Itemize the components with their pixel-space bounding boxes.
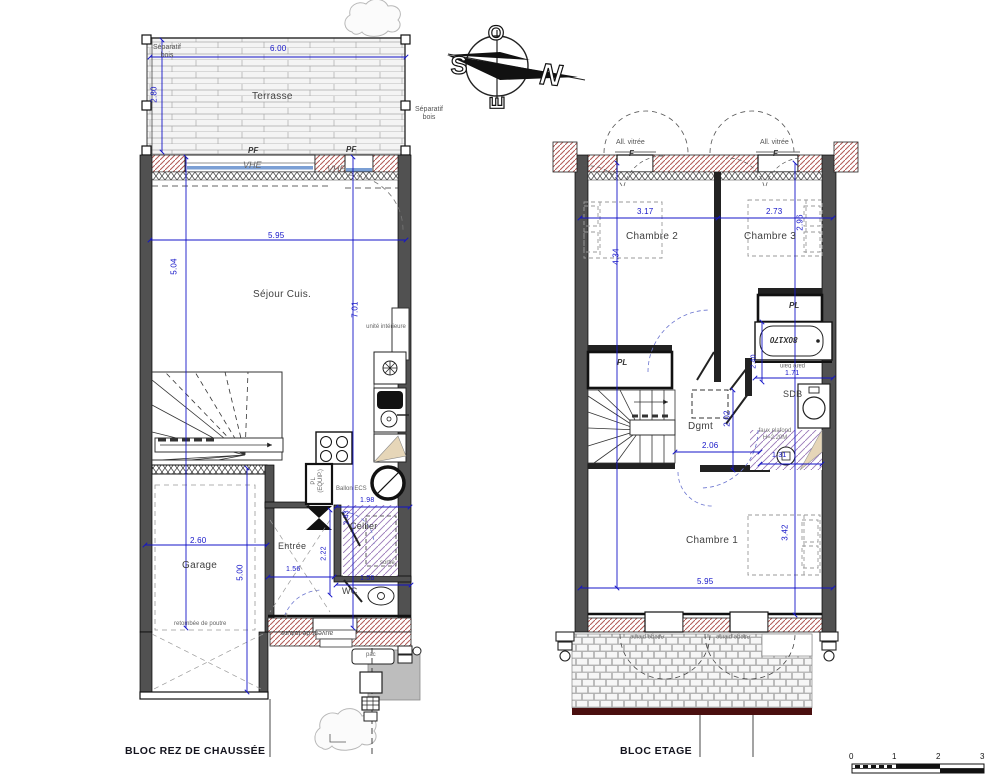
window-f1	[617, 155, 653, 172]
dim-3-17: 3.17	[637, 207, 653, 216]
ground-floor-title: BLOC REZ DE CHAUSSÉE	[125, 745, 265, 757]
pl-equip-label: PL (EQUIP.)	[311, 465, 325, 497]
gutter-band	[572, 708, 812, 715]
compass-south: S	[451, 52, 468, 80]
window-pf2-label: PF	[346, 145, 356, 154]
ballon-ecs-label: Ballon ECS	[336, 486, 367, 492]
counter-corner	[374, 434, 406, 462]
window-swing	[604, 111, 794, 153]
garage-label: Garage	[182, 560, 217, 571]
dim-5-04: 5.04	[170, 258, 179, 274]
dim-2-22: 2.22	[321, 546, 328, 560]
partition	[714, 172, 721, 382]
faux-plafond-label: faux plafond H=2.20M	[746, 428, 804, 442]
scale-bar	[852, 764, 984, 773]
entree-label: Entrée	[278, 541, 306, 551]
chambre3-label: Chambre 3	[744, 231, 796, 242]
insulation	[152, 172, 398, 180]
window-ch1b	[730, 612, 768, 632]
separatif-bois-left-label: Séparatif bois	[151, 44, 183, 60]
scale-1: 1	[892, 752, 896, 761]
dim-1-56a: 1.56	[286, 566, 300, 573]
pac-label: pac	[366, 652, 376, 658]
dim-1-71: 1.71	[785, 370, 799, 377]
water-heater-icon	[372, 467, 404, 499]
dim-2-06: 2.06	[702, 441, 718, 450]
compass-east: E	[487, 96, 509, 109]
duct	[306, 506, 332, 530]
ground-floor-plan	[140, 35, 421, 758]
window-ch1a	[645, 612, 683, 632]
closet-pl2	[588, 352, 672, 388]
vhe1-label: VHE	[243, 160, 262, 170]
floor-plan-sheet: O S E N Séparatif bois 6.00 2.80 Terrass…	[0, 0, 994, 781]
dim-2-60: 2.60	[190, 536, 206, 545]
dim-3-42: 3.42	[781, 524, 790, 540]
retombee-label: retombée de poutre	[174, 621, 226, 627]
dim-2-96: 2.96	[796, 214, 805, 230]
sink-icon	[374, 388, 409, 432]
vhe2-label: VHE	[327, 164, 346, 174]
window-f2	[758, 155, 798, 172]
sdb-label: SDB	[783, 389, 802, 399]
f-door-label: F	[284, 611, 288, 617]
dim-6-00: 6.00	[270, 44, 286, 53]
compass-north: N	[538, 58, 564, 93]
dishwasher-icon	[374, 352, 406, 384]
unite-interieure-label: unité intérieure	[364, 324, 408, 331]
beam-zone	[155, 485, 255, 630]
sortie-label: sortie	[380, 560, 395, 566]
wall	[140, 155, 152, 632]
upper-floor-title: BLOC ETAGE	[620, 745, 692, 757]
dim-2-80: 2.80	[150, 86, 159, 102]
washbasin-icon	[798, 384, 830, 428]
scale-2: 2	[936, 752, 940, 761]
dim-1-56b: 1.56	[360, 575, 374, 582]
pl1-label: PL	[789, 301, 799, 310]
compass-west: O	[488, 22, 504, 45]
door-swing	[348, 175, 403, 230]
floor-plan-drawing: O S E N	[0, 0, 994, 781]
dgmt-label: Dgmt	[688, 421, 713, 432]
dim-5-00: 5.00	[236, 564, 245, 580]
chambre2-label: Chambre 2	[626, 231, 678, 242]
scale-3: 3	[980, 752, 984, 761]
dim-7-01: 7.01	[351, 301, 360, 317]
stairs	[152, 372, 283, 460]
allege2-label: Allège pleine	[716, 633, 750, 639]
compass-icon	[447, 30, 585, 103]
auvent-label: auvent de toiture	[281, 629, 333, 636]
garage-door	[140, 692, 268, 699]
pare-bain-label: pare bain	[780, 362, 805, 368]
dim-2-73: 2.73	[766, 207, 782, 216]
dim-5-95-gf: 5.95	[268, 231, 284, 240]
dim-1-98: 1.98	[360, 497, 374, 504]
window-pf1-label: PF	[248, 146, 258, 155]
all-vitree1-label: All. vitrée	[616, 139, 645, 146]
scale-0: 0	[849, 752, 853, 761]
stairs	[588, 390, 675, 463]
cooktop-icon	[316, 432, 352, 464]
cellier-label: Cellier	[350, 521, 378, 531]
sejour-label: Séjour Cuis.	[253, 289, 311, 300]
chambre1-label: Chambre 1	[686, 535, 738, 546]
bathtub-size-label: 80X170	[770, 335, 798, 344]
dim-5-95-uf: 5.95	[697, 577, 713, 586]
toilet-icon	[368, 587, 394, 605]
dim-4-34: 4.34	[612, 248, 621, 264]
allege1-label: Allège pleine	[630, 633, 664, 639]
dim-2-40: 2.40	[751, 354, 758, 368]
all-vitree2-label: All. vitrée	[760, 139, 789, 146]
dim-2-02: 2.02	[723, 410, 732, 426]
terrasse-label: Terrasse	[252, 91, 293, 102]
upper-floor-plan	[553, 111, 858, 757]
wc-label: WC	[342, 586, 358, 596]
pl2-label: PL	[617, 358, 627, 367]
f1-label: F	[629, 149, 634, 158]
dim-1-31: 1.31	[772, 452, 786, 459]
separatif-bois-right-label: Séparatif bois	[413, 106, 445, 122]
f2-label: F	[773, 149, 778, 158]
